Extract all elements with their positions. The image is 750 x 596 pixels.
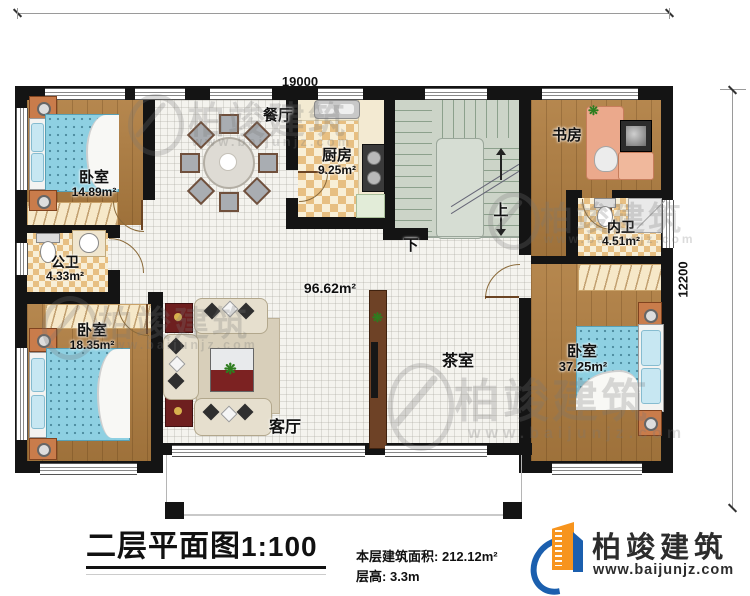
- monitor-screen: [626, 126, 646, 146]
- floor-area-line: 本层建筑面积: 212.12m²: [356, 546, 498, 565]
- stair-flight-top: [432, 100, 514, 138]
- dimension-line-top: [17, 13, 669, 14]
- plan-title-scale: 1:100: [241, 531, 318, 562]
- wall-bath1-right-top: [108, 228, 120, 238]
- wall-study-bottom: [531, 256, 673, 264]
- dining-chair: [258, 153, 278, 173]
- bed-pillow: [31, 123, 44, 152]
- stair-flight-left: [395, 100, 432, 237]
- kitchen-sink: [314, 100, 360, 119]
- title-underline-light: [86, 574, 326, 575]
- tv-screen: [371, 342, 378, 398]
- nightstand: [29, 190, 57, 211]
- nightstand: [638, 410, 662, 436]
- end-table-rosette-icon: [174, 313, 182, 321]
- study-desk-return: [618, 152, 654, 180]
- window-top-kitchen: [318, 88, 363, 100]
- end-table: [165, 397, 193, 427]
- wall-bedroom3-left: [519, 298, 531, 473]
- dining-chair: [219, 114, 239, 134]
- end-table-rosette-icon: [174, 407, 182, 415]
- bed-blanket: [97, 349, 130, 438]
- nightstand: [29, 438, 57, 460]
- door-leaf-bedroom1: [141, 200, 143, 230]
- wall-bedroom2-right: [151, 292, 163, 473]
- window-bottom-bedroom2: [40, 463, 137, 475]
- coffee-table-plant-icon: ❋: [224, 360, 237, 378]
- floor-height-value: 3.3m: [390, 569, 420, 584]
- window-top-bedroom1: [45, 88, 125, 100]
- door-leaf-bedroom3: [485, 296, 519, 298]
- window-left-bath1: [16, 243, 28, 275]
- door-leaf-bedroom2: [146, 304, 148, 334]
- window-top-stair: [425, 88, 487, 100]
- label-ensuite-bath-area: 4.51m²: [595, 235, 647, 248]
- window-top-study: [542, 88, 638, 100]
- label-bedroom3-area: 37.25m²: [552, 360, 614, 374]
- wardrobe-bedroom-right: [578, 264, 663, 291]
- dining-table-center: [219, 153, 237, 171]
- floor-area-value: 212.12m²: [442, 549, 498, 564]
- wall-bath1-bottom: [15, 292, 120, 304]
- label-bedroom2-area: 18.35m²: [58, 339, 126, 352]
- dimension-line-right: [732, 90, 733, 508]
- label-living-area: 96.62m²: [298, 281, 362, 296]
- floor-height-line: 层高: 3.3m: [356, 566, 420, 585]
- window-left-bedroom2: [16, 348, 28, 440]
- sink-basin: [79, 233, 99, 253]
- floor-area-label: 本层建筑面积:: [356, 549, 438, 564]
- window-left-bedroom1: [16, 108, 28, 190]
- window-bottom-living: [172, 445, 365, 457]
- brand-name: 柏竣建筑: [592, 524, 728, 566]
- label-kitchen-area: 9.25m²: [307, 164, 367, 177]
- label-dining: 餐厅: [254, 108, 302, 124]
- bed-pillow: [31, 153, 44, 182]
- floor-plan-canvas: ❋: [0, 0, 750, 596]
- stove-burner-icon: [367, 151, 381, 165]
- computer-monitor-icon: [620, 120, 652, 152]
- brand-website: www.baijunjz.com: [593, 562, 734, 578]
- brand-logo-windows: [555, 530, 562, 566]
- label-kitchen: 厨房: [307, 148, 367, 164]
- dimension-ext: [17, 8, 18, 19]
- label-bedroom2: 卧室: [68, 323, 116, 339]
- label-ensuite-bath: 内卫: [598, 220, 644, 235]
- label-bedroom1-area: 14.89m²: [60, 186, 128, 199]
- window-bottom-bedroom3: [552, 463, 642, 475]
- partition-plant-icon: ❋: [372, 310, 383, 326]
- stove-burner-icon: [367, 171, 381, 185]
- wall-right: [661, 86, 673, 473]
- sink-basin: [339, 104, 354, 114]
- wall-bedroom1-right: [143, 86, 155, 200]
- fridge: [356, 194, 385, 218]
- dining-chair: [219, 192, 239, 212]
- bed-pillow: [31, 358, 45, 392]
- plan-title: 二层平面图1:100: [86, 521, 318, 565]
- stair-arrow-down-icon: [496, 229, 506, 241]
- stair-landing-edge: [428, 236, 519, 237]
- terrace-outline-bottom: [166, 514, 522, 516]
- label-public-bath-area: 4.33m²: [38, 270, 92, 283]
- wall-bath2-left: [566, 190, 578, 256]
- label-stairs-up: 上: [490, 203, 512, 219]
- brand-logo-tower-icon: [573, 532, 583, 572]
- floor-height-label: 层高:: [356, 569, 386, 584]
- end-table: [165, 303, 193, 333]
- window-right-bath2: [662, 200, 674, 248]
- plan-title-text: 二层平面图: [86, 530, 241, 563]
- label-stairs-down: 下: [400, 238, 422, 254]
- bed-pillow: [641, 330, 661, 366]
- study-plant-icon: ❋: [588, 103, 599, 119]
- wall-kitchen-left: [286, 86, 298, 170]
- dimension-ext: [669, 8, 670, 19]
- sink-basin: [319, 104, 334, 114]
- stair-arrow-up-stem: [500, 152, 502, 180]
- window-top-dining-right: [210, 88, 272, 100]
- wall-bath2-top-right: [612, 190, 673, 198]
- window-top-dining-left: [135, 88, 185, 100]
- terrace-post-right: [503, 502, 522, 519]
- bed-pillow: [31, 395, 45, 429]
- terrace-post-left: [165, 502, 184, 519]
- title-underline: [86, 566, 326, 569]
- dining-chair: [180, 153, 200, 173]
- window-bottom-tea: [385, 445, 487, 457]
- label-bedroom1: 卧室: [70, 170, 118, 186]
- label-study: 书房: [543, 128, 591, 144]
- desk-chair: [594, 146, 618, 172]
- dimension-label-width: 19000: [279, 74, 321, 89]
- label-tea: 茶室: [434, 354, 482, 371]
- label-public-bath: 公卫: [44, 255, 86, 270]
- brand-logo-block: 柏竣建筑 www.baijunjz.com: [532, 520, 738, 590]
- bed-pillow: [641, 368, 661, 404]
- label-bedroom3: 卧室: [558, 344, 606, 360]
- wall-stair-right: [519, 86, 531, 255]
- wall-kitchen-bottom: [286, 217, 395, 229]
- dimension-label-height: 12200: [676, 258, 691, 302]
- brand-logo-building-icon: [552, 522, 574, 570]
- label-living: 客厅: [260, 420, 310, 437]
